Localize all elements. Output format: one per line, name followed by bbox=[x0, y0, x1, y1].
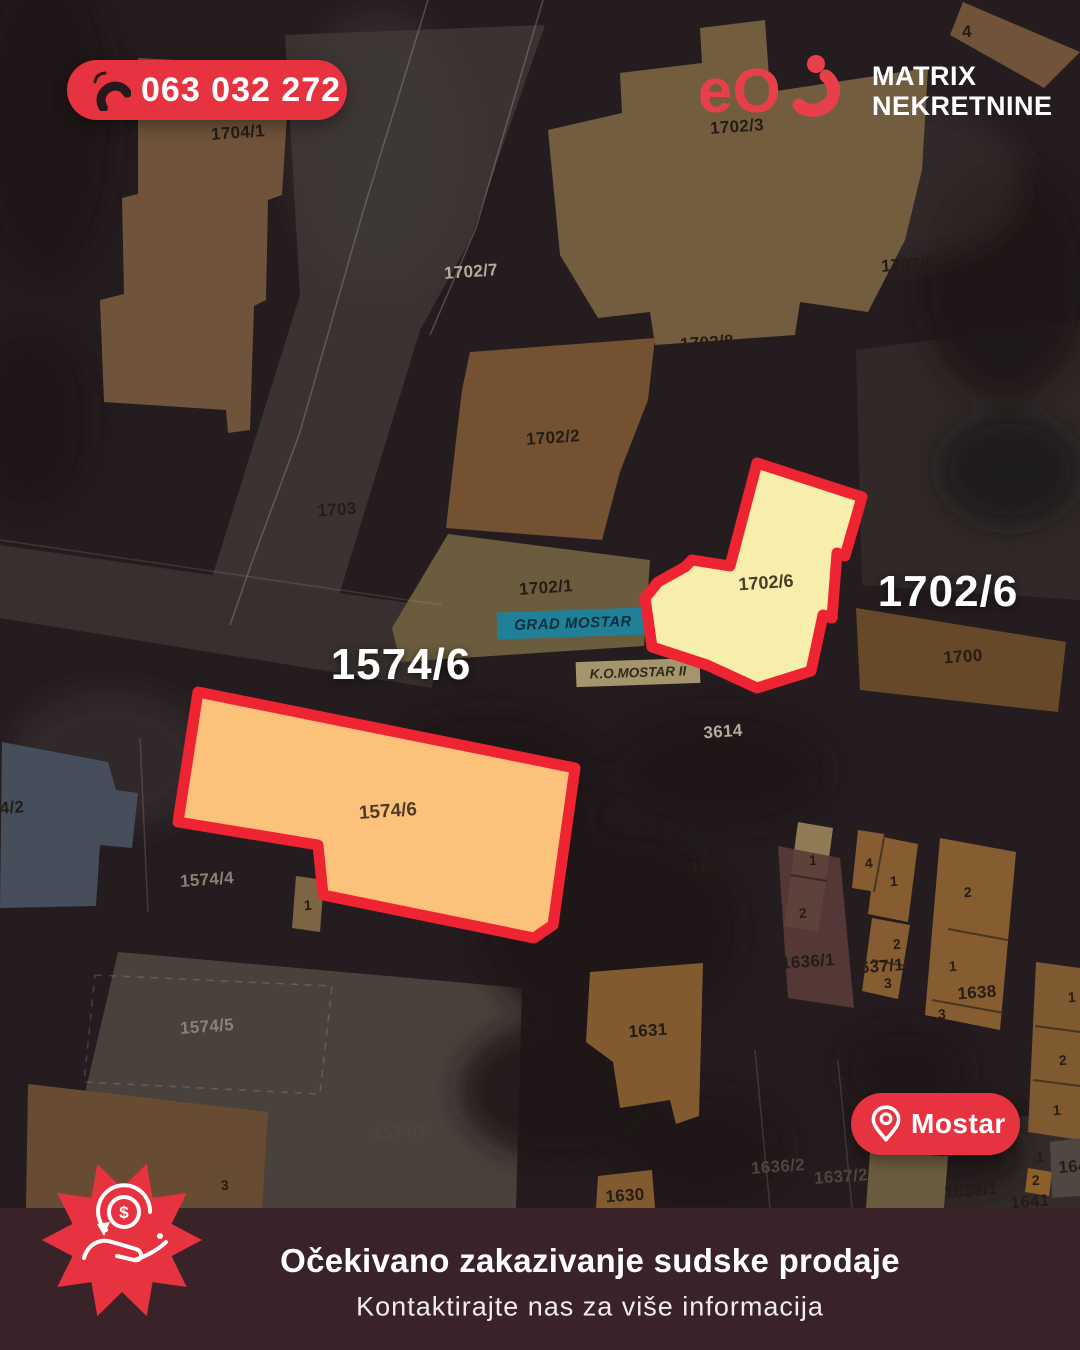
real-estate-map-poster: GRAD MOSTAR K.O.MOSTAR II 1704/1 1702/3 … bbox=[0, 0, 1080, 1350]
phone-number-text: 063 032 272 bbox=[141, 71, 341, 110]
phone-icon bbox=[89, 69, 131, 111]
banner-subtitle: Kontaktirajte nas za više informacija bbox=[356, 1292, 824, 1323]
parcel-1702-6-big-label: 1702/6 bbox=[878, 567, 1019, 617]
location-badge-text: Mostar bbox=[911, 1108, 1006, 1140]
parcel-1574-6-map-label: 1574/6 bbox=[358, 799, 418, 825]
eos-logo-icon: eO bbox=[698, 44, 878, 128]
banner-title: Očekivano zakazivanje sudske prodaje bbox=[280, 1242, 900, 1280]
location-badge[interactable]: Mostar bbox=[851, 1093, 1020, 1155]
logo-company-line1: MATRIX bbox=[872, 62, 977, 90]
logo-letters: eO bbox=[698, 57, 781, 126]
parcel-1702-6-map-label: 1702/6 bbox=[738, 571, 794, 596]
parcel-1574-6-big-label: 1574/6 bbox=[331, 640, 472, 690]
location-pin-icon bbox=[869, 1104, 903, 1144]
logo-company-line2: NEKRETNINE bbox=[872, 92, 1053, 120]
phone-number-button[interactable]: 063 032 272 bbox=[67, 60, 347, 120]
